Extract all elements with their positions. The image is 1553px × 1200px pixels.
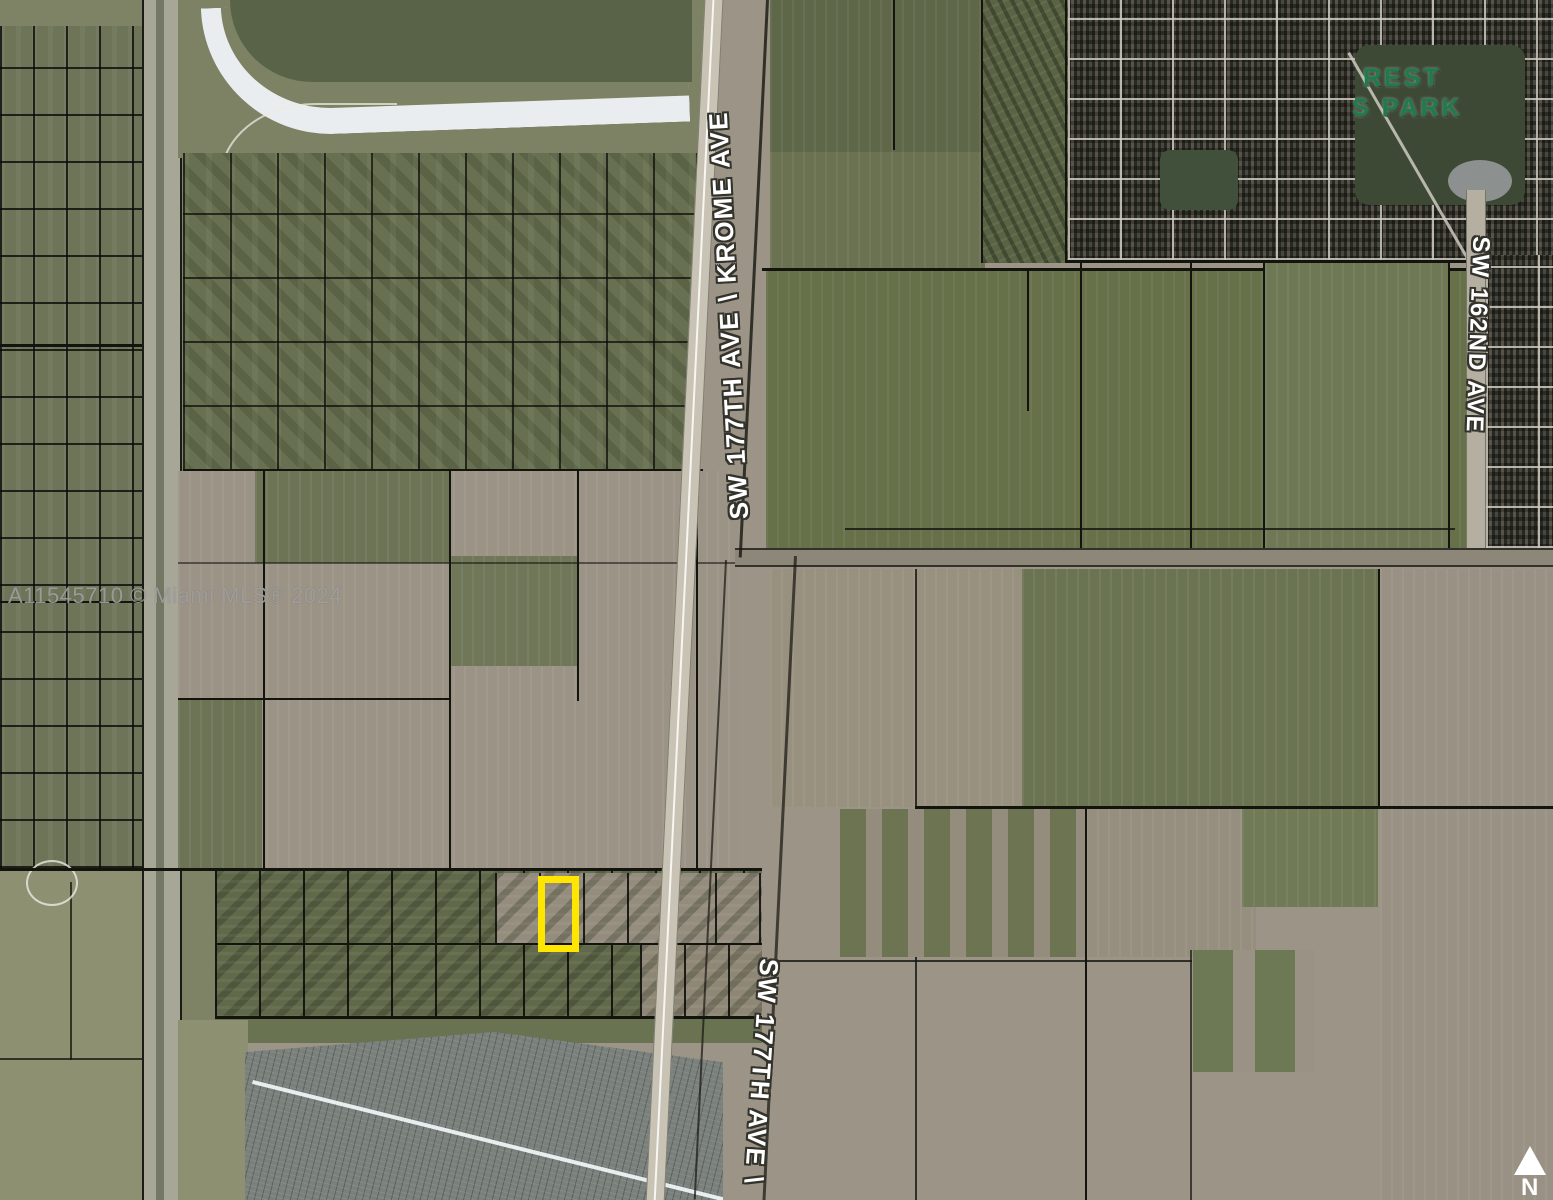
acreage-lots-block [183, 153, 699, 471]
parcel-line [981, 0, 983, 263]
north-arrow-icon [1514, 1146, 1546, 1175]
parcel-line [1448, 263, 1450, 548]
parcel-line [1027, 271, 1029, 411]
grass-sw [178, 1020, 248, 1200]
field-taupe-s [1086, 809, 1256, 957]
field-olive [255, 471, 450, 563]
field-olive [450, 556, 578, 666]
park-name-label: REST [1363, 64, 1442, 93]
parcel-line [449, 471, 451, 868]
loop-road [26, 860, 78, 906]
parcel-line [263, 471, 265, 868]
parcel-line [1263, 263, 1265, 548]
highlighted-parcel [538, 876, 579, 952]
parcel-line [577, 471, 579, 701]
treed-parcel [983, 0, 1070, 263]
park-greenspace [1160, 150, 1238, 210]
parcel-line [1065, 0, 1067, 262]
residential-sliver [1486, 255, 1553, 548]
parcel-line [215, 943, 762, 945]
field-olive [178, 700, 262, 870]
parcel-line [845, 528, 1455, 530]
parcel-line [0, 1058, 142, 1060]
crop-strips [840, 809, 1086, 957]
parcel-line [178, 698, 450, 700]
parcel-line [1085, 807, 1087, 1200]
parcel-line [770, 960, 1192, 962]
parcel-line [1080, 263, 1082, 548]
field-olive-s [1242, 809, 1378, 907]
parcel-line [1378, 569, 1380, 807]
crop-strips [1193, 950, 1315, 1072]
north-arrow-letter: N [1521, 1174, 1538, 1200]
field-taupe-se [770, 569, 1022, 807]
field-taupe-far-se [1380, 569, 1553, 1200]
road-label-krome: SW 177TH AVE \ KROME AVE [703, 110, 755, 520]
parcel-line [1190, 263, 1192, 548]
cross-road [735, 548, 1553, 567]
park-name-label: S PARK [1352, 94, 1463, 123]
field-olive-ne2 [770, 152, 985, 270]
mls-watermark: A11545710 © Miami MLS® 2024 [8, 583, 342, 609]
left-parcel-grid [0, 26, 142, 868]
field-olive-e2 [1265, 263, 1450, 548]
bottom-lot-taupe [495, 873, 762, 943]
pond [230, 0, 692, 82]
parcel-line [178, 562, 738, 564]
parcel-line [1190, 950, 1192, 1200]
aerial-map: REST S PARK SW 162ND AVE SW 177TH AVE \ … [0, 0, 1553, 1200]
parcel-line [893, 0, 895, 150]
parcel-line [70, 882, 72, 1060]
field-olive-se [1022, 569, 1380, 807]
